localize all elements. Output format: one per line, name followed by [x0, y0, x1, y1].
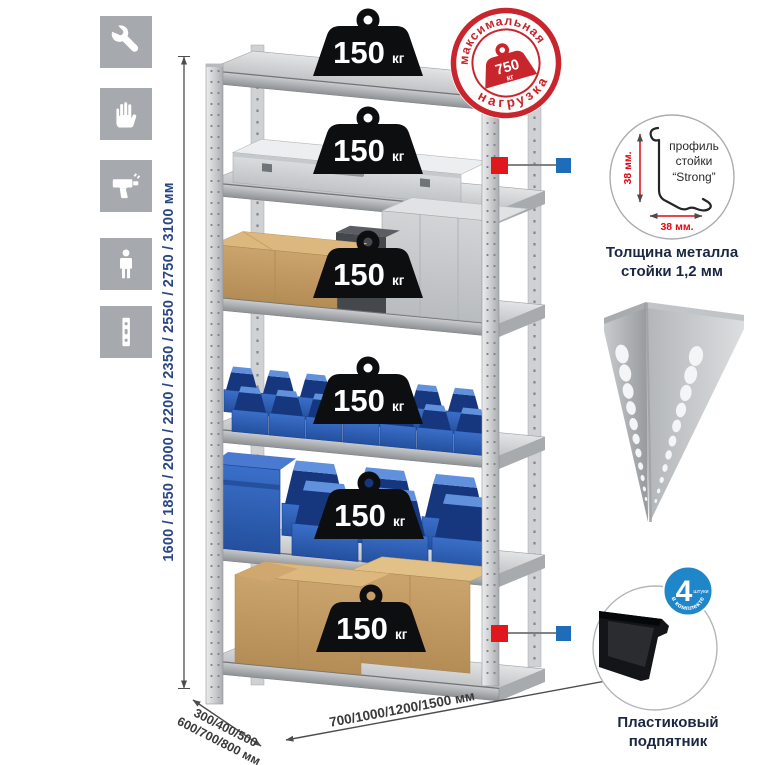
height-dimension-line	[178, 57, 190, 689]
profile-label-1: профиль	[669, 139, 719, 153]
blue-marker-bottom	[556, 626, 571, 641]
svg-text:150: 150	[333, 383, 385, 418]
svg-text:кг: кг	[395, 627, 408, 642]
svg-text:150: 150	[333, 257, 385, 292]
profile-detail: 38 мм. 38 мм. профиль стойки “Strong”	[610, 115, 734, 239]
profile-dim-vertical: 38 мм.	[622, 151, 634, 184]
angle-post-image	[604, 302, 744, 522]
profile-label-3: “Strong”	[672, 170, 715, 184]
svg-text:150: 150	[334, 498, 386, 533]
foot-caption: Пластиковый подпятник	[588, 714, 748, 752]
profile-caption: Толщина металла стойки 1,2 мм	[592, 244, 752, 282]
height-dimension-label: 1600 / 1850 / 2000 / 2200 / 2350 / 2550 …	[161, 182, 177, 561]
foot-detail: 4 штуки в комплекте	[593, 567, 717, 711]
svg-text:150: 150	[333, 133, 385, 168]
quantity-badge: 4 штуки в комплекте	[664, 567, 713, 616]
load-badge: 150кг	[313, 110, 423, 174]
scene-graphic: 150кг 150кг 150кг 150кг 150кг 150кг макс…	[0, 0, 765, 765]
svg-text:кг: кг	[392, 273, 405, 288]
load-unit: кг	[392, 51, 405, 66]
load-badge: 150кг	[313, 360, 423, 424]
profile-dim-horizontal: 38 мм.	[660, 221, 693, 233]
svg-text:кг: кг	[393, 514, 406, 529]
svg-text:150: 150	[336, 611, 388, 646]
red-marker-top	[491, 157, 508, 174]
load-value: 150	[333, 35, 385, 70]
max-load-stamp: максимальная нагрузка 750 кг	[437, 0, 576, 132]
product-infographic: 150кг 150кг 150кг 150кг 150кг 150кг макс…	[0, 0, 765, 765]
svg-text:кг: кг	[392, 399, 405, 414]
quantity-qualifier: штуки	[693, 589, 708, 595]
svg-text:кг: кг	[392, 149, 405, 164]
blue-marker-top	[556, 158, 571, 173]
red-marker-bottom	[491, 625, 508, 642]
load-badge: 150кг	[313, 12, 423, 76]
profile-label-2: стойки	[676, 154, 713, 168]
